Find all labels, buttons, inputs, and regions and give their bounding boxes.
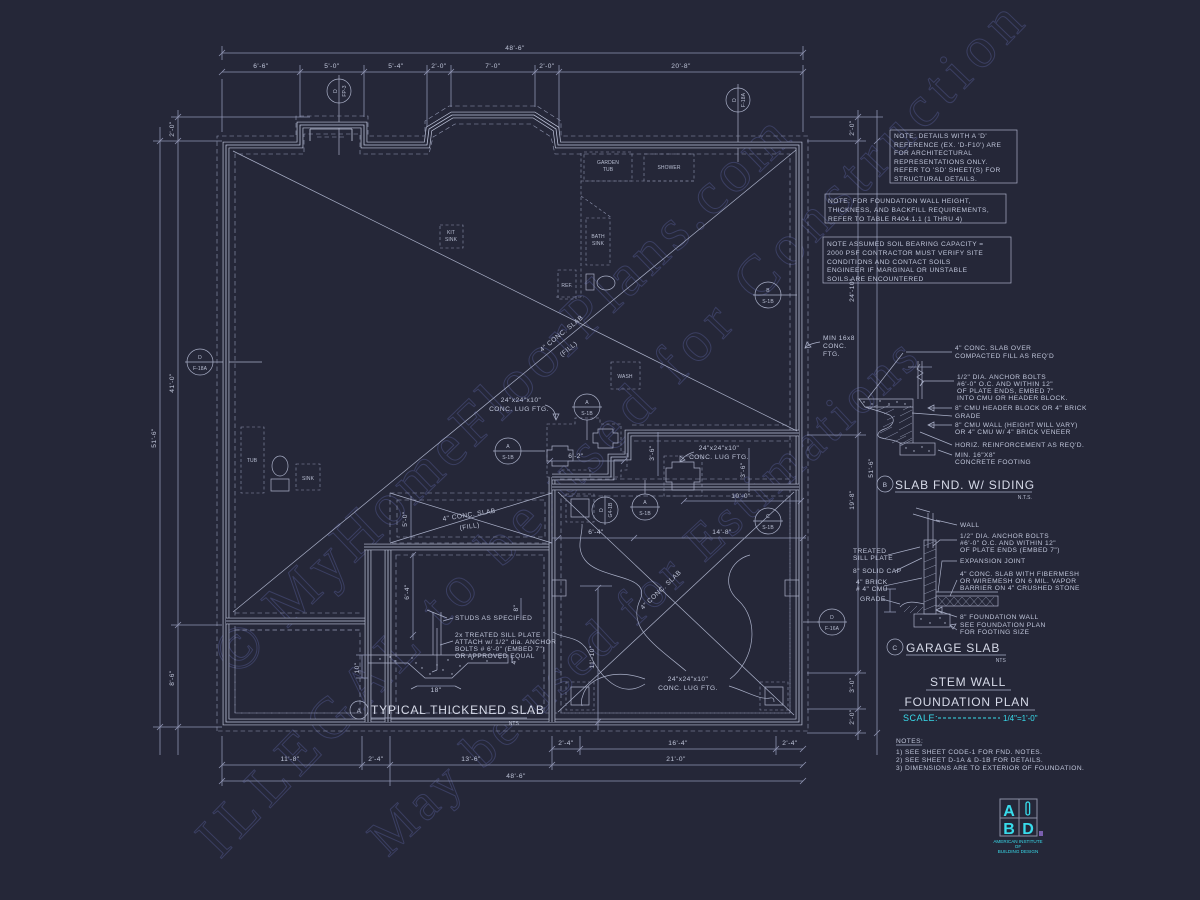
svg-text:2'-0": 2'-0" <box>849 709 856 725</box>
svg-text:NOTE ASSUMED SOIL BEARING CAPA: NOTE ASSUMED SOIL BEARING CAPACITY = <box>827 241 984 248</box>
svg-text:REFERENCE (EX. 'D-F10') ARE: REFERENCE (EX. 'D-F10') ARE <box>894 142 1002 149</box>
svg-text:2'-4": 2'-4" <box>558 740 574 747</box>
svg-text:FOR FOOTING SIZE: FOR FOOTING SIZE <box>960 629 1030 636</box>
svg-text:CONC. LUG FTG.: CONC. LUG FTG. <box>489 406 549 413</box>
svg-text:SINK: SINK <box>445 237 458 243</box>
svg-text:14'-8": 14'-8" <box>712 529 732 536</box>
svg-text:BATH: BATH <box>591 234 605 240</box>
svg-text:7'-0": 7'-0" <box>485 63 501 70</box>
svg-text:ATTACH w/ 1/2" dia. ANCHOR: ATTACH w/ 1/2" dia. ANCHOR <box>455 639 556 646</box>
svg-text:2'-0": 2'-0" <box>431 63 447 70</box>
svg-text:CONC. LUG FTG.: CONC. LUG FTG. <box>658 685 718 692</box>
svg-text:BUILDING DESIGN: BUILDING DESIGN <box>998 849 1039 854</box>
svg-text:OF PLATE ENDS (EMBED 7"): OF PLATE ENDS (EMBED 7") <box>960 547 1060 554</box>
svg-text:TUB: TUB <box>247 458 258 464</box>
svg-text:8": 8" <box>513 604 520 611</box>
svg-text:A: A <box>1003 803 1015 820</box>
svg-text:CONC. LUG FTG.: CONC. LUG FTG. <box>689 454 749 461</box>
svg-text:1/2" DIA. ANCHOR BOLTS: 1/2" DIA. ANCHOR BOLTS <box>960 533 1049 540</box>
svg-text:1) SEE SHEET CODE-1 FOR FND.: 1) SEE SHEET CODE-1 FOR FND. NOTES. <box>896 749 1042 756</box>
svg-text:EXPANSION JOINT: EXPANSION JOINT <box>960 558 1026 565</box>
svg-text:6'-6": 6'-6" <box>253 63 269 70</box>
svg-text:D: D <box>599 508 605 512</box>
svg-text:REFER TO TABLE R404.1.1 (1 THR: REFER TO TABLE R404.1.1 (1 THRU 4) <box>828 216 963 223</box>
svg-text:2'-0": 2'-0" <box>539 63 555 70</box>
svg-text:8" SOLID CAP: 8" SOLID CAP <box>853 568 902 575</box>
svg-text:TREATED: TREATED <box>853 548 886 555</box>
svg-text:S-1B: S-1B <box>762 525 774 531</box>
svg-text:N.T.S.: N.T.S. <box>1018 495 1032 501</box>
svg-text:8" CMU HEADER BLOCK OR 4" BRIC: 8" CMU HEADER BLOCK OR 4" BRICK <box>955 405 1087 412</box>
svg-text:INTO CMU OR HEADER BLOCK.: INTO CMU OR HEADER BLOCK. <box>957 395 1068 402</box>
svg-text:SILL PLATE: SILL PLATE <box>853 555 893 562</box>
svg-text:NOTE: FOR FOUNDATION WALL HEIG: NOTE: FOR FOUNDATION WALL HEIGHT, <box>828 198 971 205</box>
svg-text:2) SEE SHEET D-1A & D-1B FOR: 2) SEE SHEET D-1A & D-1B FOR DETAILS. <box>896 757 1043 764</box>
svg-text:2'-0": 2'-0" <box>849 120 856 136</box>
svg-text:SINK: SINK <box>302 476 315 482</box>
svg-text:2'-0": 2'-0" <box>169 121 176 137</box>
svg-text:C: C <box>766 514 770 520</box>
svg-text:F-18A: F-18A <box>193 366 208 372</box>
svg-text:2x TREATED SILL PLATE: 2x TREATED SILL PLATE <box>455 632 541 639</box>
svg-text:GRADE: GRADE <box>860 596 886 603</box>
svg-text:A: A <box>357 708 362 715</box>
svg-text:8" CMU WALL (HEIGHT WILL VARY): 8" CMU WALL (HEIGHT WILL VARY) <box>955 422 1078 429</box>
svg-text:11'-10": 11'-10" <box>589 645 596 668</box>
svg-text:BOLTS # 6'-0" (EMBED 7"): BOLTS # 6'-0" (EMBED 7") <box>455 646 545 653</box>
svg-text:19'-8": 19'-8" <box>849 490 856 510</box>
svg-text:2'-4": 2'-4" <box>782 740 798 747</box>
svg-text:4" CONC. SLAB OVER: 4" CONC. SLAB OVER <box>955 345 1031 352</box>
svg-text:SOILS ARE ENCOUNTERED: SOILS ARE ENCOUNTERED <box>827 276 924 283</box>
svg-text:GRADE: GRADE <box>955 413 981 420</box>
svg-text:48'-6": 48'-6" <box>506 773 526 780</box>
svg-text:S-1B: S-1B <box>502 455 514 461</box>
svg-text:CONCRETE FOOTING: CONCRETE FOOTING <box>955 459 1031 466</box>
svg-text:C: C <box>892 645 897 652</box>
svg-text:REF.: REF. <box>561 283 572 289</box>
svg-text:STEM WALL: STEM WALL <box>930 675 1006 689</box>
svg-text:COMPACTED FILL AS REQ'D: COMPACTED FILL AS REQ'D <box>955 353 1054 360</box>
svg-text:5'-0": 5'-0" <box>402 511 409 527</box>
svg-text:# 4" CMU: # 4" CMU <box>856 586 888 593</box>
svg-text:1/2" DIA. ANCHOR BOLTS: 1/2" DIA. ANCHOR BOLTS <box>957 374 1046 381</box>
svg-text:D: D <box>1022 821 1034 838</box>
svg-text:4" BRICK: 4" BRICK <box>856 579 888 586</box>
svg-text:OR APPROVED EQUAL: OR APPROVED EQUAL <box>455 653 535 660</box>
svg-text:REPRESENTATIONS ONLY.: REPRESENTATIONS ONLY. <box>894 159 988 166</box>
svg-text:SLAB FND. W/ SIDING: SLAB FND. W/ SIDING <box>895 478 1035 492</box>
svg-text:13'-6": 13'-6" <box>461 756 481 763</box>
svg-text:#6'-0" O.C. AND WITHIN 12": #6'-0" O.C. AND WITHIN 12" <box>960 540 1056 547</box>
svg-text:D: D <box>333 89 339 93</box>
svg-text:HORIZ. REINFORCEMENT AS REQ'D.: HORIZ. REINFORCEMENT AS REQ'D. <box>955 442 1084 449</box>
svg-text:16'-4": 16'-4" <box>668 740 688 747</box>
svg-text:GARDEN: GARDEN <box>597 160 619 166</box>
svg-text:3'-6": 3'-6" <box>649 445 656 461</box>
svg-text:18": 18" <box>430 687 441 694</box>
svg-text:A: A <box>506 444 510 450</box>
svg-text:G4-1B: G4-1B <box>608 502 614 518</box>
svg-text:6'-4": 6'-4" <box>404 584 411 600</box>
svg-text:NOTES:: NOTES: <box>896 738 923 745</box>
svg-text:CONDITIONS AND CONTACT SOILS: CONDITIONS AND CONTACT SOILS <box>827 259 951 266</box>
svg-text:S-1B: S-1B <box>762 299 774 305</box>
svg-text:24"x24"x10": 24"x24"x10" <box>699 445 740 452</box>
svg-text:24"x24"x10": 24"x24"x10" <box>501 397 542 404</box>
svg-text:BARRIER ON 4" CRUSHED STONE: BARRIER ON 4" CRUSHED STONE <box>960 585 1080 592</box>
svg-text:A: A <box>585 400 589 406</box>
svg-text:OR 4" CMU W/ 4" BRICK VENEER: OR 4" CMU W/ 4" BRICK VENEER <box>955 429 1071 436</box>
svg-text:1/4"=1'-0": 1/4"=1'-0" <box>1003 714 1038 723</box>
svg-text:4": 4" <box>511 657 518 664</box>
svg-text:SCALE:: SCALE: <box>903 713 938 723</box>
svg-text:20'-8": 20'-8" <box>671 63 691 70</box>
svg-text:3'-0": 3'-0" <box>849 677 856 693</box>
svg-text:51'-6": 51'-6" <box>868 458 875 478</box>
svg-text:NTS: NTS <box>996 658 1007 664</box>
svg-text:4" CONC. SLAB WITH FIBERMESH: 4" CONC. SLAB WITH FIBERMESH <box>960 571 1079 578</box>
svg-text:6'-4": 6'-4" <box>588 529 604 536</box>
svg-text:A: A <box>643 500 647 506</box>
svg-text:STRUCTURAL DETAILS.: STRUCTURAL DETAILS. <box>894 176 977 183</box>
svg-text:S-1B: S-1B <box>639 511 651 517</box>
svg-text:FOUNDATION PLAN: FOUNDATION PLAN <box>904 695 1029 709</box>
svg-text:41'-0": 41'-0" <box>169 373 176 393</box>
svg-text:KIT: KIT <box>447 230 455 236</box>
svg-text:11'-8": 11'-8" <box>280 756 299 763</box>
svg-text:8" FOUNDATION WALL: 8" FOUNDATION WALL <box>960 614 1039 621</box>
svg-text:NOTE: DETAILS WITH A 'D': NOTE: DETAILS WITH A 'D' <box>894 133 987 140</box>
svg-text:F-16A: F-16A <box>825 626 840 632</box>
svg-text:6'-2": 6'-2" <box>568 453 584 460</box>
svg-text:GARAGE SLAB: GARAGE SLAB <box>906 641 1000 655</box>
svg-text:51'-6": 51'-6" <box>151 428 158 448</box>
svg-text:FP-3: FP-3 <box>342 85 348 96</box>
svg-text:SEE FOUNDATION PLAN: SEE FOUNDATION PLAN <box>960 622 1046 629</box>
svg-text:CONC.: CONC. <box>823 343 847 350</box>
svg-text:24"x24"x10": 24"x24"x10" <box>668 676 709 683</box>
svg-text:FTG.: FTG. <box>823 351 840 358</box>
svg-text:ENGINEER IF MARGINAL OR UNSTAB: ENGINEER IF MARGINAL OR UNSTABLE <box>827 267 968 274</box>
svg-text:S-1B: S-1B <box>581 411 593 417</box>
svg-text:10'-0": 10'-0" <box>731 493 751 500</box>
svg-text:5'-4": 5'-4" <box>388 63 404 70</box>
svg-text:3'-6": 3'-6" <box>740 462 747 478</box>
svg-text:D: D <box>198 355 202 361</box>
svg-text:48'-6": 48'-6" <box>505 45 525 52</box>
svg-text:10": 10" <box>354 662 361 673</box>
svg-text:21'-0": 21'-0" <box>666 756 686 763</box>
svg-text:SINK: SINK <box>592 241 605 247</box>
svg-text:TUB: TUB <box>603 167 614 173</box>
svg-text:FOR ARCHITECTURAL: FOR ARCHITECTURAL <box>894 150 972 157</box>
svg-text:WASH: WASH <box>617 374 633 380</box>
svg-text:B: B <box>1003 821 1015 838</box>
svg-text:OF PLATE ENDS, EMBED 7": OF PLATE ENDS, EMBED 7" <box>957 388 1054 395</box>
svg-text:#6'-0" O.C. AND WITHIN 12": #6'-0" O.C. AND WITHIN 12" <box>957 381 1053 388</box>
svg-text:OR WIREMESH ON 6 MIL. VAPOR: OR WIREMESH ON 6 MIL. VAPOR <box>960 578 1076 585</box>
svg-text:D: D <box>830 615 834 621</box>
svg-text:B: B <box>883 482 888 489</box>
svg-text:THICKNESS, AND BACKFILL REQUIR: THICKNESS, AND BACKFILL REQUIREMENTS, <box>828 207 989 214</box>
svg-text:5'-0": 5'-0" <box>324 63 340 70</box>
svg-text:2'-4": 2'-4" <box>368 756 384 763</box>
svg-text:D: D <box>732 98 738 102</box>
svg-text:SHOWER: SHOWER <box>657 165 680 171</box>
svg-text:WALL: WALL <box>960 522 980 529</box>
svg-text:REFER TO 'SD' SHEET(S) FOR: REFER TO 'SD' SHEET(S) FOR <box>894 167 1001 174</box>
svg-text:2000 PSF CONTRACTOR MUST VERIF: 2000 PSF CONTRACTOR MUST VERIFY SITE <box>827 250 983 257</box>
svg-text:3) DIMENSIONS ARE TO EXTERIOR: 3) DIMENSIONS ARE TO EXTERIOR OF FOUNDAT… <box>896 765 1084 772</box>
svg-text:B: B <box>766 288 770 294</box>
svg-text:MIN 16x8: MIN 16x8 <box>823 335 855 342</box>
svg-text:MIN. 16"X8": MIN. 16"X8" <box>955 452 996 459</box>
svg-text:NTS: NTS <box>509 721 520 727</box>
svg-text:F-18A: F-18A <box>741 92 747 107</box>
svg-text:TYPICAL THICKENED SLAB: TYPICAL THICKENED SLAB <box>371 703 545 717</box>
svg-text:8'-6": 8'-6" <box>169 670 176 686</box>
